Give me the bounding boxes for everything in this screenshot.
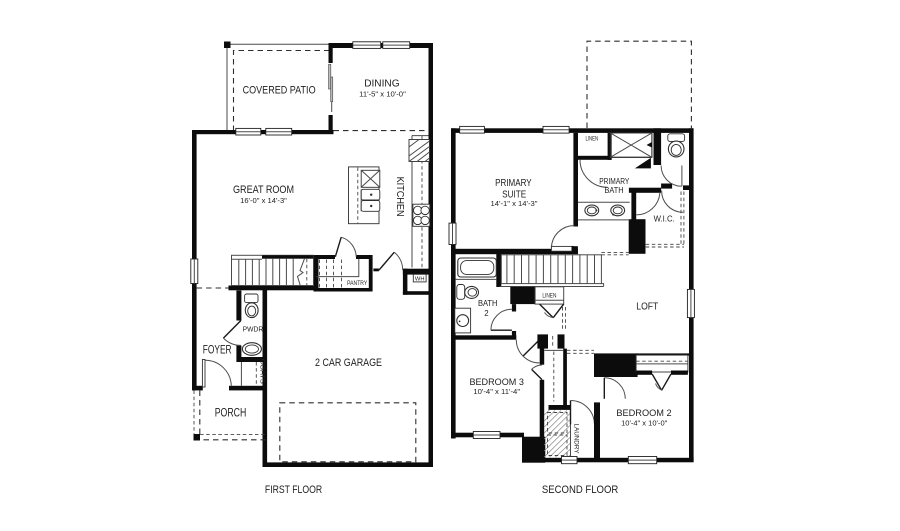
svg-text:PWDR: PWDR	[243, 325, 264, 334]
svg-text:11'-5" x 10'-0": 11'-5" x 10'-0"	[359, 89, 406, 98]
svg-text:WH: WH	[415, 276, 425, 282]
svg-text:BEDROOM 2: BEDROOM 2	[616, 408, 671, 419]
svg-text:PRIMARY: PRIMARY	[495, 178, 532, 189]
svg-text:LINEN: LINEN	[542, 293, 556, 300]
svg-text:10'-4" x 11'-4": 10'-4" x 11'-4"	[473, 387, 520, 396]
svg-text:10'-4" x 10'-0": 10'-4" x 10'-0"	[621, 419, 668, 428]
svg-text:PANTRY: PANTRY	[347, 280, 368, 287]
svg-text:PORCH: PORCH	[215, 408, 247, 420]
svg-text:SECOND FLOOR: SECOND FLOOR	[542, 484, 618, 496]
svg-text:W.I.C.: W.I.C.	[654, 215, 675, 224]
svg-text:LAUNDRY: LAUNDRY	[572, 424, 579, 455]
svg-text:DINING: DINING	[364, 78, 399, 89]
svg-text:GREAT ROOM: GREAT ROOM	[233, 184, 294, 196]
svg-text:BATH: BATH	[605, 186, 624, 195]
svg-text:KITCHEN: KITCHEN	[394, 177, 405, 217]
svg-text:2: 2	[484, 309, 488, 318]
svg-text:2 CAR GARAGE: 2 CAR GARAGE	[315, 357, 382, 369]
svg-text:COVERED PATIO: COVERED PATIO	[243, 85, 316, 97]
svg-text:COATS: COATS	[258, 359, 264, 384]
svg-text:PRIMARY: PRIMARY	[599, 177, 630, 186]
svg-text:FIRST FLOOR: FIRST FLOOR	[265, 484, 322, 496]
svg-text:LINEN: LINEN	[585, 137, 598, 143]
svg-text:LOFT: LOFT	[636, 300, 658, 312]
svg-text:14'-1" x 14'-3": 14'-1" x 14'-3"	[491, 199, 538, 208]
svg-text:FOYER: FOYER	[203, 345, 232, 357]
svg-text:BATH: BATH	[478, 299, 498, 308]
svg-text:16'-0" x 14'-3": 16'-0" x 14'-3"	[240, 196, 287, 205]
